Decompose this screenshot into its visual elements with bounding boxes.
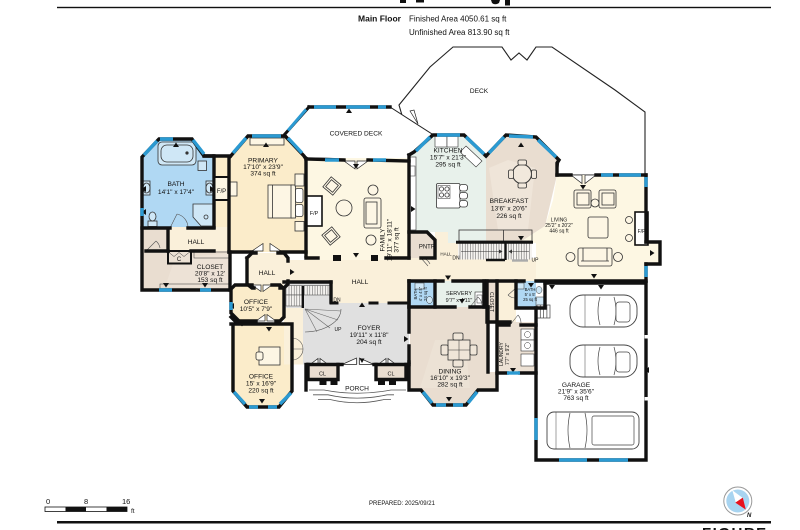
svg-text:OFFICE: OFFICE [249, 374, 274, 381]
svg-text:10'5" x 7'9": 10'5" x 7'9" [240, 306, 273, 313]
svg-text:446 sq ft: 446 sq ft [549, 229, 569, 235]
svg-text:295 sq ft: 295 sq ft [435, 162, 460, 169]
svg-text:13'6" x 20'6": 13'6" x 20'6" [491, 206, 528, 213]
svg-text:CL: CL [387, 372, 394, 378]
svg-text:7'7" x 9'2": 7'7" x 9'2" [505, 343, 511, 365]
svg-text:15'7" x 21'3": 15'7" x 21'3" [430, 155, 467, 162]
svg-text:14'1" x 17'4": 14'1" x 17'4" [158, 189, 195, 196]
svg-text:N: N [747, 513, 752, 519]
svg-text:24 sq ft: 24 sq ft [423, 286, 428, 301]
svg-text:9'7" x 4'11": 9'7" x 4'11" [446, 298, 473, 304]
svg-text:0: 0 [46, 497, 50, 506]
svg-text:PNTR: PNTR [419, 245, 436, 251]
svg-text:COVERED DECK: COVERED DECK [330, 131, 383, 138]
svg-text:BATH: BATH [167, 181, 184, 188]
svg-text:PREPARED: 2025/09/21: PREPARED: 2025/09/21 [369, 501, 436, 507]
svg-text:Finished Area 4050.61 sq ft: Finished Area 4050.61 sq ft [409, 15, 507, 24]
svg-text:FAMILY: FAMILY [380, 228, 387, 252]
svg-text:PORCH: PORCH [345, 386, 369, 393]
svg-text:19'11" x 11'8": 19'11" x 11'8" [350, 332, 390, 339]
svg-text:SERVERY: SERVERY [446, 291, 472, 297]
svg-text:25 sq ft: 25 sq ft [523, 297, 538, 302]
svg-text:153 sq ft: 153 sq ft [197, 277, 222, 284]
svg-text:F/P: F/P [310, 211, 319, 217]
svg-text:FIGURE: FIGURE [702, 525, 768, 530]
svg-text:C: C [177, 257, 182, 263]
svg-text:HALL: HALL [259, 270, 276, 277]
svg-text:16: 16 [122, 497, 130, 506]
svg-text:F/P: F/P [217, 189, 226, 195]
svg-text:F/P: F/P [638, 229, 646, 235]
svg-text:763 sq ft: 763 sq ft [563, 395, 588, 402]
svg-text:DN: DN [333, 298, 341, 304]
svg-text:282 sq ft: 282 sq ft [437, 382, 462, 389]
svg-text:220 sq ft: 220 sq ft [248, 388, 273, 395]
svg-text:HALL: HALL [352, 279, 369, 286]
svg-text:HALL: HALL [440, 252, 452, 257]
svg-text:DN: DN [452, 256, 460, 262]
svg-text:UP: UP [532, 258, 540, 264]
svg-text:374 sq ft: 374 sq ft [250, 171, 275, 178]
svg-text:19'11" x 18'11": 19'11" x 18'11" [387, 218, 394, 261]
svg-text:377 sq ft: 377 sq ft [394, 227, 401, 252]
svg-text:HALL: HALL [188, 239, 205, 246]
svg-text:8: 8 [84, 497, 88, 506]
svg-text:15' x 16'9": 15' x 16'9" [246, 381, 277, 388]
svg-text:OFFICE: OFFICE [244, 299, 269, 306]
svg-text:BREAKFAST: BREAKFAST [490, 198, 529, 205]
svg-text:KITCHEN: KITCHEN [434, 148, 463, 155]
svg-text:Main Floor: Main Floor [358, 14, 402, 24]
svg-text:Unfinished Area 813.90 sq ft: Unfinished Area 813.90 sq ft [409, 28, 510, 37]
svg-text:DECK: DECK [470, 88, 489, 95]
svg-text:FOYER: FOYER [358, 325, 381, 332]
svg-text:CL: CL [319, 372, 326, 378]
svg-text:UP: UP [335, 327, 343, 333]
svg-text:226 sq ft: 226 sq ft [496, 213, 521, 220]
svg-text:ft: ft [131, 508, 135, 515]
svg-text:204 sq ft: 204 sq ft [356, 339, 381, 346]
svg-text:CLOSET: CLOSET [488, 292, 494, 312]
